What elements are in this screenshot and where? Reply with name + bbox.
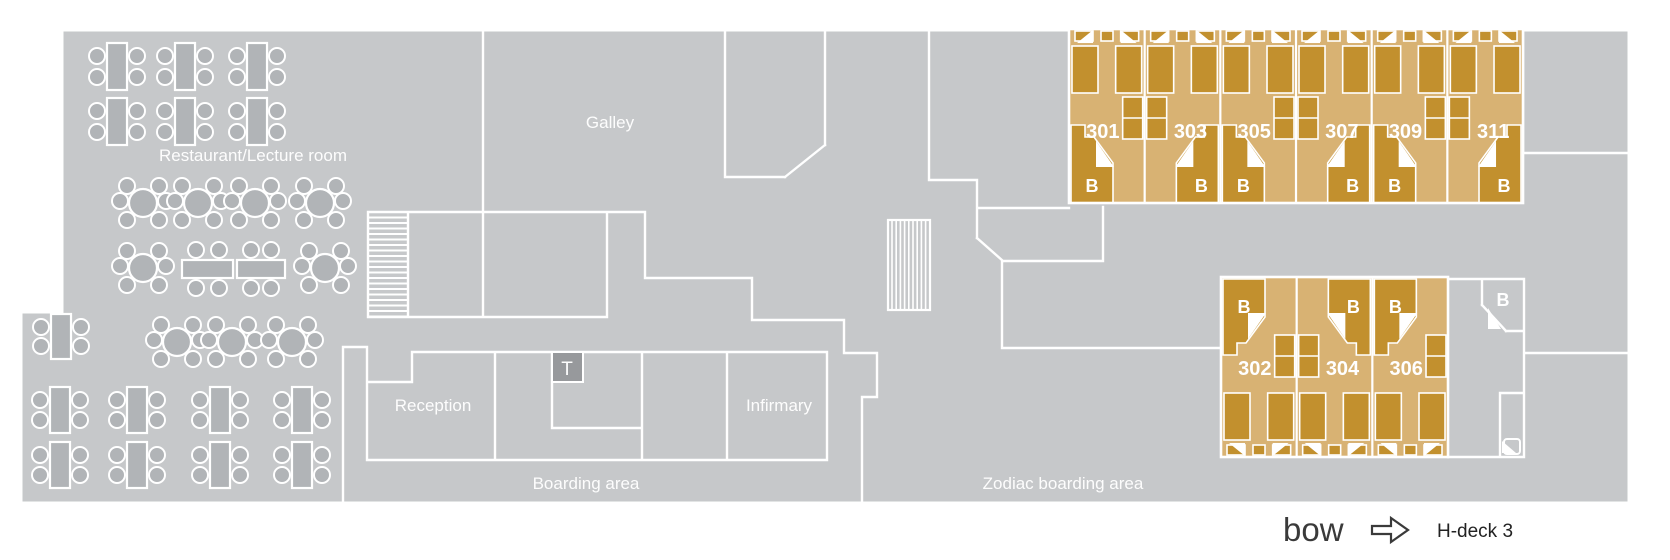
chair bbox=[296, 178, 312, 194]
chair bbox=[89, 48, 105, 64]
chair bbox=[157, 124, 173, 140]
bathroom-label-306: B bbox=[1389, 297, 1402, 317]
chair bbox=[333, 243, 349, 259]
chair bbox=[240, 317, 256, 333]
bathroom-label-304: B bbox=[1347, 297, 1360, 317]
chair bbox=[153, 351, 169, 367]
chair bbox=[73, 319, 89, 335]
chair bbox=[211, 242, 227, 258]
chair bbox=[340, 258, 356, 274]
chair bbox=[231, 212, 247, 228]
chair bbox=[232, 392, 248, 408]
chair bbox=[263, 242, 279, 258]
bathroom-label-303: B bbox=[1195, 176, 1208, 196]
cabin-number-305: 305 bbox=[1237, 121, 1270, 143]
chair bbox=[129, 103, 145, 119]
chair bbox=[32, 412, 48, 428]
dining-table bbox=[247, 98, 267, 145]
chair bbox=[185, 317, 201, 333]
chair bbox=[89, 69, 105, 85]
cabin-furniture bbox=[1148, 46, 1174, 93]
chair bbox=[174, 212, 190, 228]
cabin-number-309: 309 bbox=[1389, 121, 1422, 143]
dining-table bbox=[50, 442, 70, 488]
chair bbox=[153, 317, 169, 333]
chair bbox=[112, 193, 128, 209]
chair bbox=[157, 69, 173, 85]
cabin-furniture bbox=[1101, 31, 1113, 41]
cabin-furniture bbox=[1328, 31, 1340, 41]
toilet-label: T bbox=[561, 359, 573, 380]
cabin-furniture bbox=[1404, 31, 1416, 41]
room-label-galley: Galley bbox=[586, 113, 635, 132]
cabin-block-bottom: B302B304B306 bbox=[1221, 277, 1448, 457]
chair bbox=[197, 103, 213, 119]
chair bbox=[119, 212, 135, 228]
dining-table bbox=[127, 387, 147, 433]
cabin-furniture bbox=[1252, 31, 1264, 41]
chair bbox=[243, 280, 259, 296]
chair bbox=[149, 412, 165, 428]
chair bbox=[232, 467, 248, 483]
chair bbox=[232, 447, 248, 463]
chair bbox=[314, 392, 330, 408]
cabin-furniture bbox=[1375, 46, 1401, 93]
chair bbox=[129, 69, 145, 85]
chair bbox=[157, 103, 173, 119]
dining-table bbox=[127, 442, 147, 488]
bathroom-label-305: B bbox=[1237, 176, 1250, 196]
cabin-furniture bbox=[1224, 393, 1250, 440]
chair bbox=[314, 467, 330, 483]
chair bbox=[274, 467, 290, 483]
chair bbox=[149, 467, 165, 483]
chair bbox=[328, 178, 344, 194]
chair bbox=[208, 351, 224, 367]
chair bbox=[129, 48, 145, 64]
chair bbox=[274, 412, 290, 428]
cabin-number-303: 303 bbox=[1174, 121, 1207, 143]
chair bbox=[261, 332, 277, 348]
bathroom-label-309: B bbox=[1388, 176, 1401, 196]
chair bbox=[146, 332, 162, 348]
cabin-furniture bbox=[1223, 46, 1249, 93]
chair bbox=[89, 103, 105, 119]
cabin-number-301: 301 bbox=[1086, 121, 1119, 143]
chair bbox=[185, 351, 201, 367]
chair bbox=[119, 277, 135, 293]
chair bbox=[206, 178, 222, 194]
dining-table bbox=[107, 98, 127, 145]
deck-plan-svg: B301B303B305B307B309B311 B302B304B306 T … bbox=[0, 0, 1670, 560]
chair bbox=[263, 280, 279, 296]
chair bbox=[231, 178, 247, 194]
chair bbox=[229, 103, 245, 119]
room-label-infirmary: Infirmary bbox=[746, 396, 813, 415]
bathroom-label-311: B bbox=[1498, 176, 1511, 196]
cabin-furniture bbox=[1343, 393, 1369, 440]
chair bbox=[157, 48, 173, 64]
chair bbox=[314, 412, 330, 428]
cabin-furniture bbox=[1375, 393, 1401, 440]
chair bbox=[269, 69, 285, 85]
chair bbox=[158, 258, 174, 274]
bathroom-label-302: B bbox=[1238, 297, 1251, 317]
chair bbox=[269, 103, 285, 119]
cabin-furniture bbox=[1450, 46, 1476, 93]
cabin-number-307: 307 bbox=[1325, 121, 1358, 143]
chair bbox=[206, 212, 222, 228]
dining-table bbox=[247, 43, 267, 90]
cabin-furniture bbox=[1419, 393, 1445, 440]
chair bbox=[229, 48, 245, 64]
chair bbox=[263, 178, 279, 194]
chair bbox=[192, 467, 208, 483]
chair bbox=[307, 332, 323, 348]
chair bbox=[300, 317, 316, 333]
room-label-zodiac-boarding-area: Zodiac boarding area bbox=[983, 474, 1144, 493]
chair bbox=[197, 124, 213, 140]
round-table bbox=[241, 189, 269, 217]
cabin-furniture bbox=[1418, 46, 1444, 93]
chair bbox=[151, 277, 167, 293]
round-table bbox=[311, 254, 339, 282]
cabin-number-311: 311 bbox=[1477, 121, 1509, 143]
chair bbox=[32, 447, 48, 463]
chair bbox=[73, 338, 89, 354]
dining-table bbox=[237, 260, 285, 278]
cabin-number-302: 302 bbox=[1238, 358, 1271, 380]
round-table bbox=[163, 328, 191, 356]
cabin-furniture bbox=[1343, 46, 1369, 93]
dining-table bbox=[210, 442, 230, 488]
chair bbox=[268, 317, 284, 333]
chair bbox=[72, 392, 88, 408]
cabin-furniture bbox=[1072, 46, 1098, 93]
dining-table bbox=[51, 314, 71, 359]
chair bbox=[72, 412, 88, 428]
chair bbox=[335, 193, 351, 209]
chair bbox=[151, 243, 167, 259]
bathroom-label-301: B bbox=[1086, 176, 1099, 196]
deck-name-label: H-deck 3 bbox=[1437, 521, 1513, 542]
chair bbox=[167, 193, 183, 209]
chair bbox=[240, 351, 256, 367]
chair bbox=[149, 392, 165, 408]
chair bbox=[269, 124, 285, 140]
dining-table bbox=[107, 43, 127, 90]
chair bbox=[109, 447, 125, 463]
chair bbox=[188, 242, 204, 258]
room-label-boarding-area: Boarding area bbox=[533, 474, 640, 493]
bathroom-label-307: B bbox=[1346, 176, 1359, 196]
chair bbox=[328, 212, 344, 228]
chair bbox=[151, 178, 167, 194]
round-table bbox=[278, 328, 306, 356]
chair bbox=[192, 392, 208, 408]
cabin-furniture bbox=[1300, 393, 1326, 440]
chair bbox=[300, 351, 316, 367]
room-label-restaurant: Restaurant/Lecture room bbox=[159, 146, 347, 165]
cabin-furniture bbox=[1404, 445, 1416, 455]
chair bbox=[263, 212, 279, 228]
chair bbox=[232, 412, 248, 428]
chair bbox=[119, 243, 135, 259]
chair bbox=[301, 277, 317, 293]
room-label-reception: Reception bbox=[395, 396, 472, 415]
chair bbox=[270, 193, 286, 209]
chair bbox=[229, 69, 245, 85]
cabin-furniture bbox=[1268, 393, 1294, 440]
bow-direction-label: bow bbox=[1283, 511, 1344, 548]
round-table bbox=[218, 328, 246, 356]
dining-table bbox=[292, 442, 312, 488]
chair bbox=[192, 412, 208, 428]
dining-table bbox=[175, 98, 195, 145]
chair bbox=[174, 178, 190, 194]
chair bbox=[211, 280, 227, 296]
chair bbox=[192, 447, 208, 463]
cabin-furniture bbox=[1329, 445, 1341, 455]
shared-bathroom-label: B bbox=[1497, 290, 1510, 310]
round-table bbox=[184, 189, 212, 217]
dining-table bbox=[210, 387, 230, 433]
chair bbox=[314, 447, 330, 463]
chair bbox=[201, 332, 217, 348]
chair bbox=[33, 338, 49, 354]
cabin-furniture bbox=[1267, 46, 1293, 93]
chair bbox=[269, 48, 285, 64]
chair bbox=[301, 243, 317, 259]
right-arrow-icon bbox=[1372, 518, 1408, 542]
round-table bbox=[306, 189, 334, 217]
round-table bbox=[129, 254, 157, 282]
chair bbox=[72, 467, 88, 483]
cabin-furniture bbox=[1253, 445, 1265, 455]
cabin-furniture bbox=[1494, 46, 1520, 93]
cabin-furniture bbox=[1177, 31, 1189, 41]
chair bbox=[274, 392, 290, 408]
chair bbox=[289, 193, 305, 209]
chair bbox=[188, 280, 204, 296]
chair bbox=[296, 212, 312, 228]
chair bbox=[274, 447, 290, 463]
cabin-furniture bbox=[1116, 46, 1142, 93]
cabin-furniture bbox=[1479, 31, 1491, 41]
dining-table bbox=[50, 387, 70, 433]
cabin-furniture bbox=[1299, 46, 1325, 93]
dining-table bbox=[182, 260, 233, 278]
dining-table bbox=[292, 387, 312, 433]
chair bbox=[109, 392, 125, 408]
chair bbox=[208, 317, 224, 333]
chair bbox=[109, 412, 125, 428]
chair bbox=[119, 178, 135, 194]
chair bbox=[224, 193, 240, 209]
chair bbox=[149, 447, 165, 463]
chair bbox=[112, 258, 128, 274]
chair bbox=[243, 242, 259, 258]
deck-plan-page: B301B303B305B307B309B311 B302B304B306 T … bbox=[0, 0, 1670, 560]
chair bbox=[33, 319, 49, 335]
chair bbox=[129, 124, 145, 140]
chair bbox=[268, 351, 284, 367]
chair bbox=[109, 467, 125, 483]
cabin-number-306: 306 bbox=[1389, 358, 1422, 380]
round-table bbox=[129, 189, 157, 217]
chair bbox=[333, 277, 349, 293]
cabin-number-304: 304 bbox=[1326, 358, 1360, 380]
chair bbox=[151, 212, 167, 228]
chair bbox=[197, 48, 213, 64]
chair bbox=[32, 467, 48, 483]
dining-table bbox=[175, 43, 195, 90]
chair bbox=[89, 124, 105, 140]
cabin-furniture bbox=[1191, 46, 1217, 93]
chair bbox=[294, 258, 310, 274]
chair bbox=[72, 447, 88, 463]
chair bbox=[197, 69, 213, 85]
cabin-block-top: B301B303B305B307B309B311 bbox=[1069, 29, 1523, 203]
chair bbox=[229, 124, 245, 140]
chair bbox=[32, 392, 48, 408]
